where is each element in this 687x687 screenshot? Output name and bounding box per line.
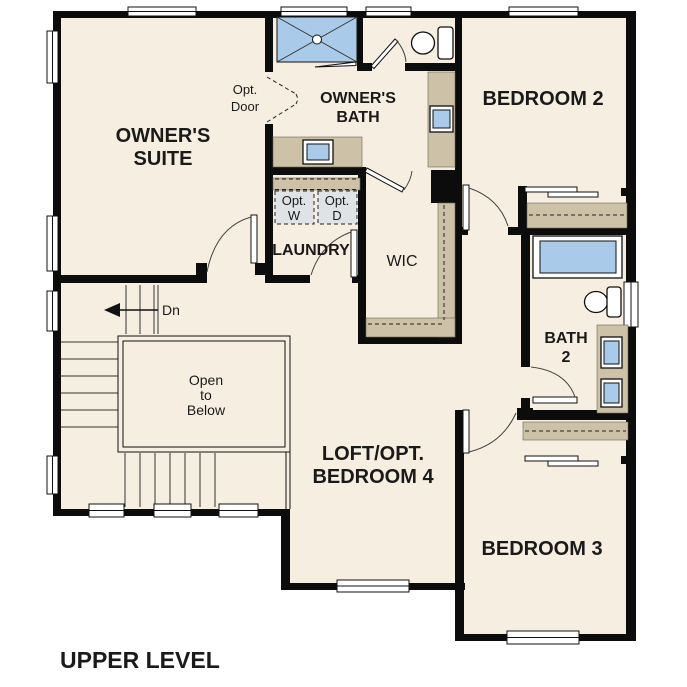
wall <box>255 263 273 275</box>
window <box>128 7 196 16</box>
wall <box>358 337 462 344</box>
wall <box>265 275 310 283</box>
bathtub <box>533 236 622 278</box>
loft-label: BEDROOM 4 <box>312 466 434 488</box>
wall <box>357 63 372 71</box>
wall <box>265 11 273 72</box>
window <box>47 216 58 271</box>
wall <box>358 167 366 343</box>
plan-title: UPPER LEVEL <box>60 647 220 673</box>
floor-plan-upper-level: OWNER'S SUITE OWNER'S BATH BEDROOM 2 LAU… <box>0 0 687 687</box>
window <box>624 282 638 327</box>
bath2-label: BATH <box>544 330 587 347</box>
open-to-below-label: to <box>200 387 212 403</box>
owners-bath-label: OWNER'S <box>320 90 396 107</box>
owners-suite-label: OWNER'S <box>116 125 211 147</box>
wic-shelf <box>438 203 455 337</box>
window <box>47 291 58 331</box>
laundry-label: LAUNDRY <box>272 242 350 259</box>
wall <box>431 170 458 203</box>
bedroom3-label: BEDROOM 3 <box>481 538 602 560</box>
window <box>47 456 58 494</box>
wall <box>53 275 196 283</box>
wall <box>521 227 530 367</box>
window <box>219 504 258 517</box>
window <box>154 504 191 517</box>
window <box>337 580 409 592</box>
owners-bath-label: BATH <box>336 109 379 126</box>
owners-bath-sink-2 <box>430 106 453 132</box>
bath2-sink <box>601 337 622 368</box>
bedroom2-closet-shelf <box>527 203 627 228</box>
window <box>89 504 124 517</box>
bath2-sink-2 <box>601 379 622 407</box>
owners-bath-sink <box>303 140 333 164</box>
loft-label: LOFT/OPT. <box>322 443 424 465</box>
opt-dryer-label: Opt. <box>325 193 350 208</box>
bath2-label: 2 <box>562 349 571 366</box>
opt-door-label: Door <box>231 99 260 114</box>
opt-washer-label: W <box>288 208 301 223</box>
wall <box>265 167 363 175</box>
wall <box>517 408 533 420</box>
opt-dryer-label: D <box>332 208 341 223</box>
window <box>47 31 58 83</box>
wic-shelf <box>366 318 455 337</box>
laundry-shelf <box>273 178 360 190</box>
opt-door-label: Opt. <box>233 82 258 97</box>
opt-washer-label: Opt. <box>282 193 307 208</box>
wall <box>405 63 462 71</box>
open-to-below-label: Open <box>189 372 223 388</box>
bedroom2-label: BEDROOM 2 <box>482 88 603 110</box>
open-to-below-label: Below <box>187 402 226 418</box>
wall <box>281 509 290 590</box>
window <box>366 7 411 16</box>
window <box>509 7 578 16</box>
stairs-down-label: Dn <box>162 302 180 318</box>
wall <box>357 11 363 63</box>
owners-suite-label: SUITE <box>134 148 193 170</box>
wic-label: WIC <box>386 253 417 270</box>
wall <box>196 263 207 283</box>
wall <box>455 203 462 344</box>
window <box>507 631 579 644</box>
window <box>281 7 347 16</box>
shower <box>277 17 357 67</box>
